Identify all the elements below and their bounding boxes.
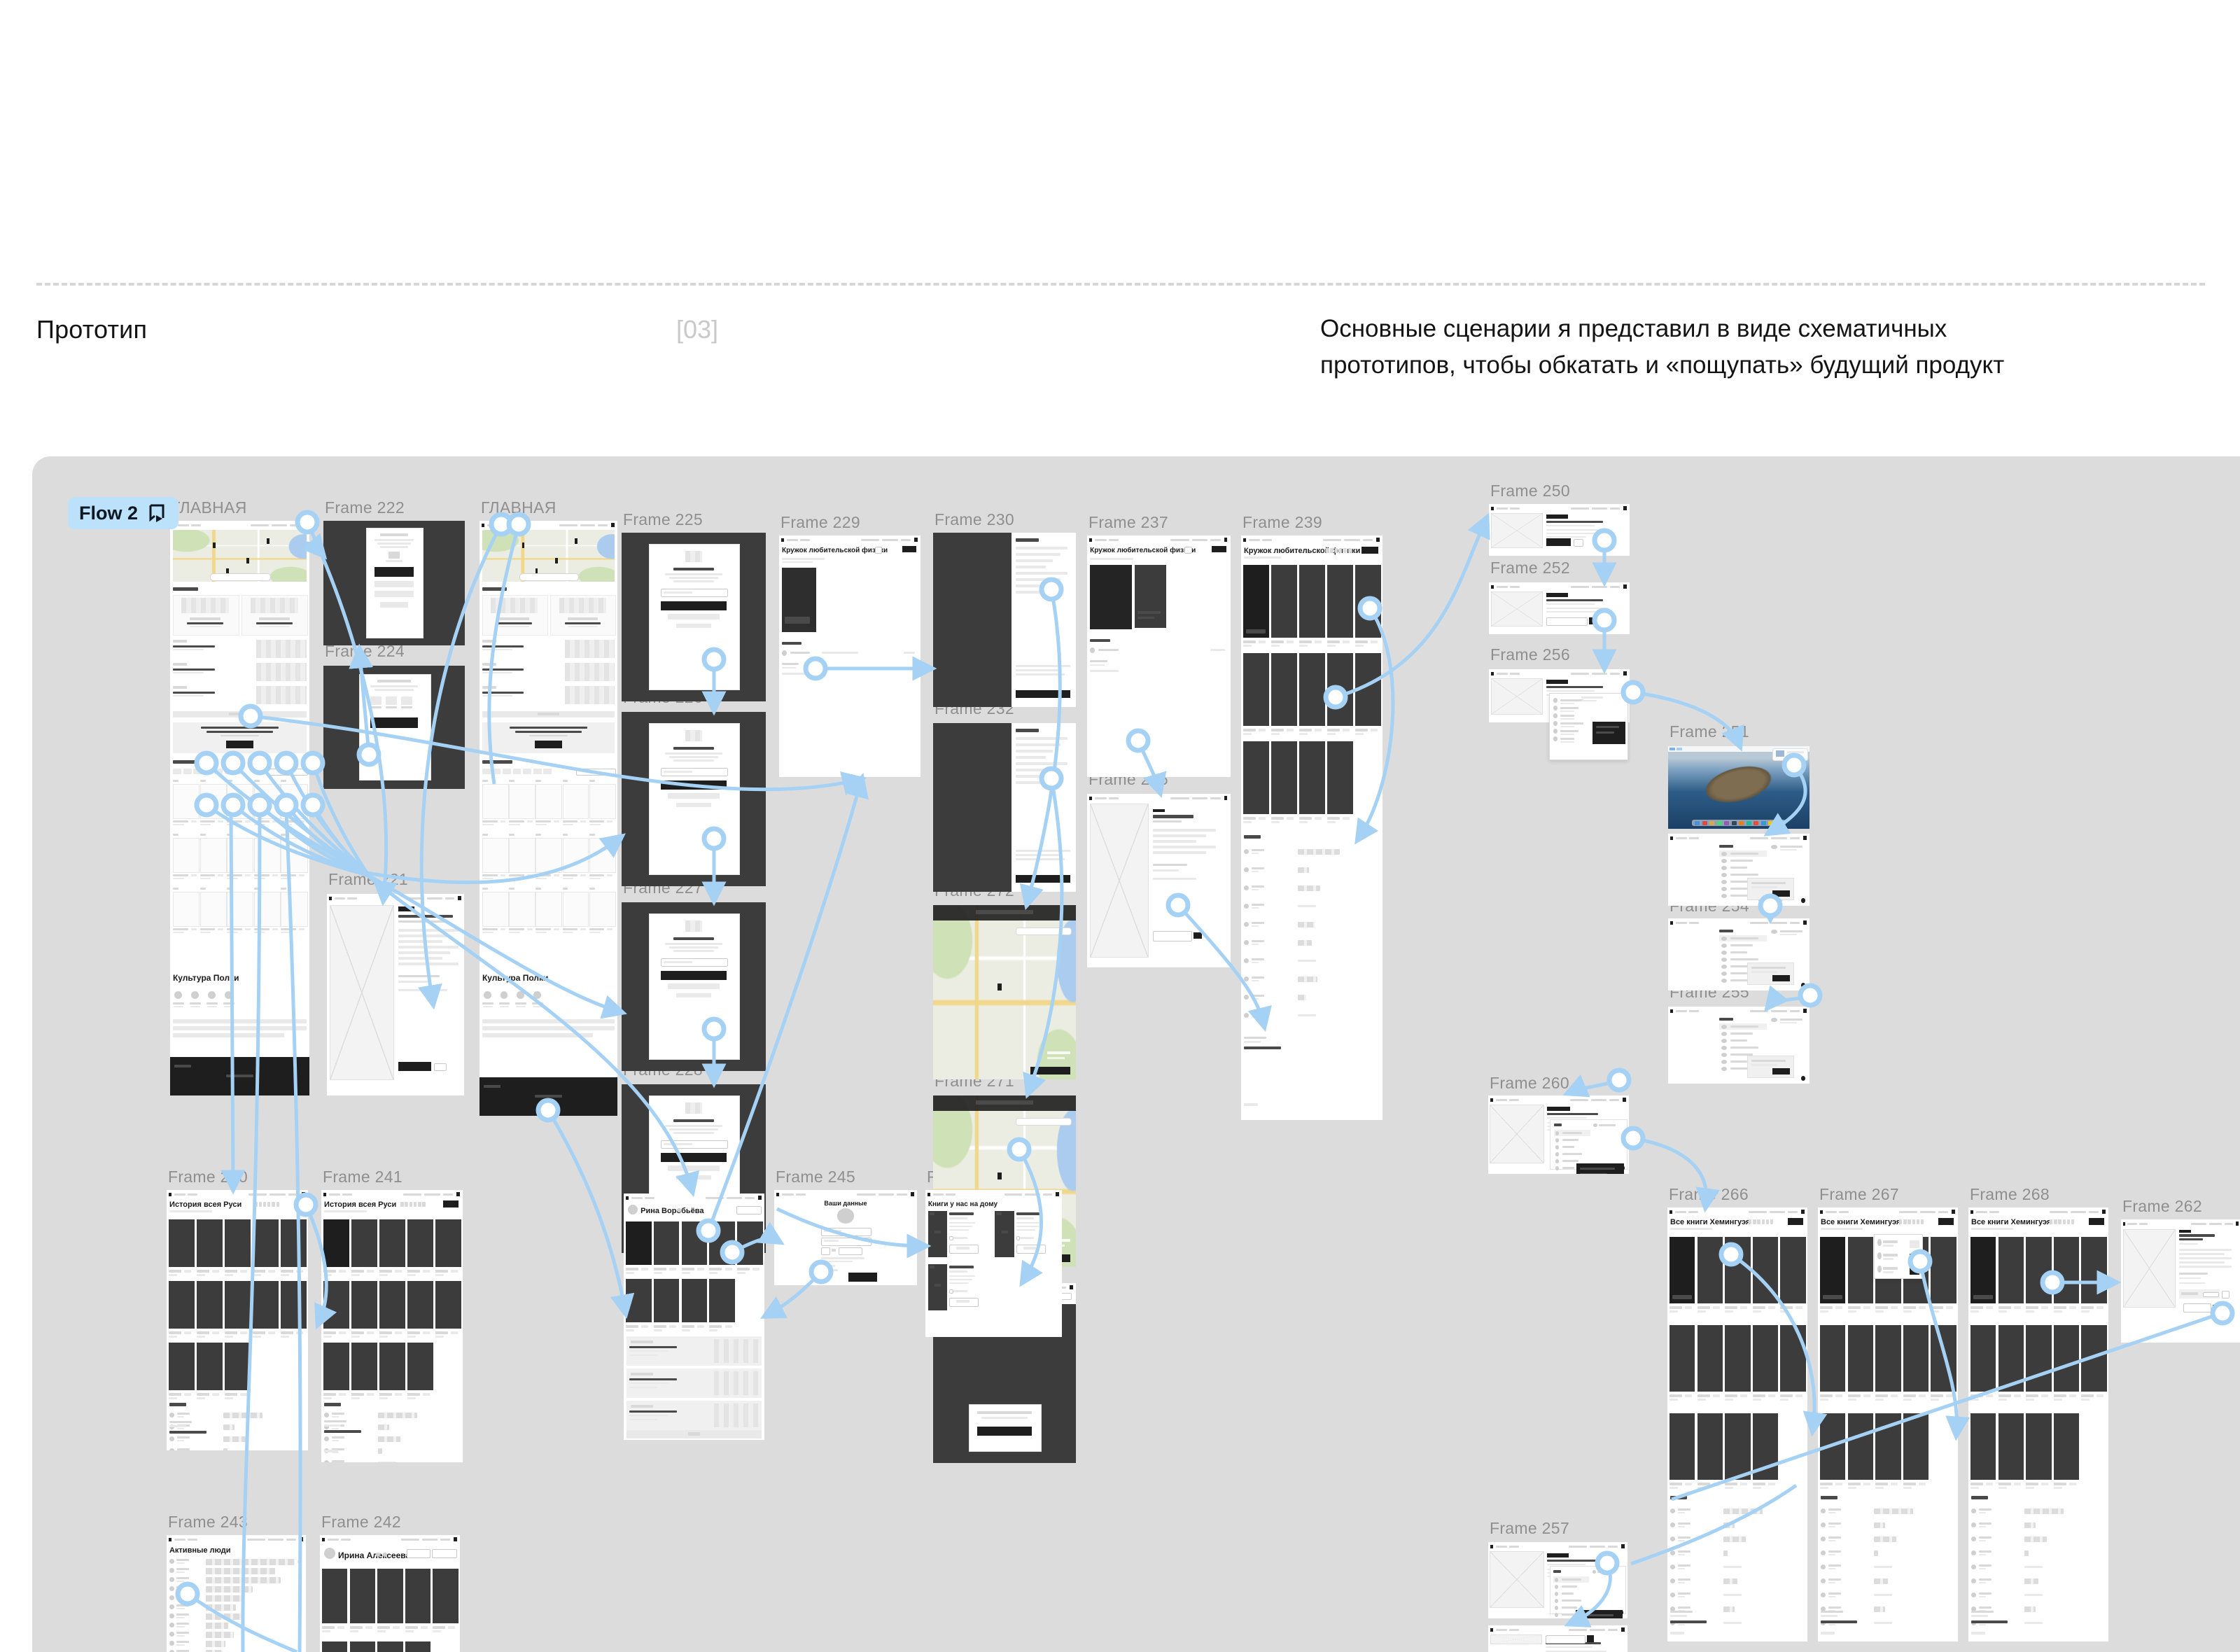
wireframe-element [169, 1641, 174, 1646]
wireframe-element [1243, 538, 1246, 542]
wireframe-element [821, 1257, 864, 1259]
wireframe-element [1730, 937, 1758, 939]
wireframe-element [281, 1219, 307, 1267]
wireframe-element [1090, 804, 1149, 958]
wireframe-element [1979, 1550, 1991, 1553]
wireframe-element [1979, 1606, 1991, 1609]
wireframe-element [176, 1644, 185, 1646]
canvas-frame-256[interactable] [1489, 669, 1630, 722]
wireframe-element [1713, 1483, 1720, 1485]
wireframe-element [1750, 837, 1768, 839]
wireframe-element [1730, 1032, 1753, 1035]
wireframe-element [832, 1249, 836, 1252]
wireframe-element [1546, 608, 1608, 609]
wireframe-element [1259, 817, 1266, 820]
wireframe-element [669, 1268, 676, 1270]
wireframe-element [1581, 700, 1597, 701]
wireframe-element [1244, 976, 1249, 981]
wireframe-element [254, 780, 260, 782]
wireframe-element [169, 1613, 174, 1618]
canvas-frame-240[interactable]: История всея Руси [167, 1190, 308, 1450]
wireframe-element [1979, 1526, 1986, 1527]
frame-label-260[interactable]: Frame 260 [1490, 1074, 1569, 1093]
wireframe-element [418, 1202, 421, 1207]
wireframe-element [380, 533, 408, 536]
wireframe-element [1016, 673, 1064, 675]
wireframe-element [200, 820, 216, 822]
wireframe-element [1891, 1483, 1898, 1485]
wireframe-element [2024, 1594, 2043, 1596]
wireframe-element [2069, 1394, 2076, 1397]
wireframe-element [1023, 1247, 1036, 1249]
canvas-frame-232[interactable] [933, 723, 1076, 892]
wireframe-element [367, 1270, 374, 1273]
wireframe-element [1919, 1306, 1926, 1309]
wireframe-element [1771, 930, 1777, 934]
wireframe-element [200, 932, 211, 933]
wireframe-element [631, 1197, 643, 1199]
wireframe-element [535, 838, 562, 873]
wireframe-element [1970, 1487, 1979, 1489]
frame-label-222[interactable]: Frame 222 [325, 498, 405, 517]
wireframe-element [374, 567, 414, 577]
wireframe-element [176, 1568, 189, 1570]
canvas-frame-226[interactable] [622, 712, 766, 886]
canvas-frame-250[interactable] [1489, 504, 1630, 556]
wireframe-element [1970, 1210, 1973, 1214]
wireframe-element [1252, 958, 1264, 960]
wireframe-element [563, 874, 578, 876]
wireframe-element [1569, 1546, 1587, 1548]
wireframe-element [299, 874, 304, 876]
wireframe-element [200, 780, 206, 782]
canvas-frame-261[interactable] [1488, 1625, 1627, 1652]
wireframe-element [1224, 538, 1228, 542]
wireframe-element [1670, 836, 1673, 840]
wireframe-element [177, 1428, 184, 1429]
wireframe-element [206, 1604, 237, 1611]
wireframe-element [176, 1577, 189, 1579]
wireframe-element [1510, 673, 1520, 675]
wireframe-element [378, 1413, 418, 1418]
wireframe-element [1970, 1394, 1983, 1397]
wireframe-element [510, 727, 587, 729]
frame-label-266[interactable]: Frame 266 [1669, 1185, 1749, 1204]
canvas-frame-222[interactable] [323, 521, 465, 645]
frame-label-242[interactable]: Frame 242 [321, 1513, 401, 1532]
canvas-frame-272[interactable] [933, 905, 1076, 1079]
wireframe-element [1597, 1571, 1614, 1573]
wireframe-element [210, 573, 270, 581]
wireframe-element [1919, 1394, 1926, 1397]
wireframe-element [1771, 922, 1786, 924]
wireframe-element [790, 652, 810, 654]
wireframe-element [1244, 1041, 1261, 1043]
wireframe-element [342, 1193, 352, 1196]
wireframe-element [1355, 565, 1381, 638]
wireframe-element [1016, 547, 1067, 549]
wireframe-element [563, 824, 574, 825]
wireframe-element [1689, 922, 1699, 924]
wireframe-element [1678, 1526, 1685, 1527]
wireframe-element [176, 1559, 189, 1561]
wireframe-element [654, 1279, 680, 1322]
wireframe-element [218, 874, 223, 876]
wireframe-element [341, 1539, 351, 1541]
canvas-frame-glavnaya-1[interactable]: Культура Полки [170, 521, 309, 1095]
canvas-frame-260[interactable] [1488, 1095, 1629, 1174]
wireframe-element [1355, 645, 1364, 647]
wireframe-element [169, 1421, 192, 1423]
canvas-frame-242[interactable]: Ирина Алексеева [320, 1535, 460, 1652]
frame-label-237[interactable]: Frame 237 [1088, 513, 1168, 532]
wireframe-element [559, 598, 606, 613]
wireframe-element [1327, 640, 1340, 643]
wireframe-element [1780, 934, 1797, 935]
wireframe-element [1252, 995, 1264, 997]
wireframe-element [1746, 821, 1751, 825]
frame-label-252[interactable]: Frame 252 [1490, 559, 1570, 577]
wireframe-element [482, 524, 484, 527]
wireframe-element [629, 1378, 677, 1380]
frame-label-230[interactable]: Frame 230 [934, 510, 1014, 529]
wireframe-element [1747, 1056, 1794, 1078]
wireframe-element [782, 650, 787, 656]
wireframe-element [649, 723, 740, 875]
wireframe-element [380, 602, 408, 608]
wireframe-element [2026, 1310, 2034, 1312]
wireframe-element [281, 874, 296, 876]
wireframe-element [661, 1153, 727, 1162]
wireframe-element [1299, 821, 1308, 823]
wireframe-element [253, 1219, 279, 1267]
canvas-frame-252[interactable] [1489, 582, 1630, 634]
wireframe-element [563, 834, 568, 836]
wireframe-element [2209, 1223, 2222, 1225]
wireframe-element [1821, 1228, 1863, 1230]
frame-label-225[interactable]: Frame 225 [623, 510, 703, 529]
wireframe-element [169, 1281, 195, 1329]
wireframe-element [1016, 665, 1070, 667]
wireframe-element [374, 591, 414, 597]
wireframe-element [398, 929, 458, 932]
wireframe-element [1249, 539, 1260, 541]
wireframe-element [1669, 1325, 1695, 1392]
wireframe-element [2183, 1303, 2211, 1312]
canvas-frame-266[interactable]: Все книги Хемингуэя [1667, 1207, 1807, 1641]
wireframe-element [398, 934, 450, 937]
wireframe-element [407, 1343, 433, 1390]
wireframe-element [395, 1331, 402, 1334]
wireframe-element [1343, 817, 1350, 820]
canvas-frame-254[interactable] [1668, 918, 1809, 990]
frame-label-229[interactable]: Frame 229 [780, 513, 860, 532]
canvas-frame-267[interactable]: Все книги Хемингуэя [1818, 1207, 1958, 1641]
wireframe-element [173, 692, 215, 694]
canvas-frame-230[interactable] [933, 533, 1076, 707]
wireframe-element [367, 1393, 374, 1396]
wireframe-element [629, 1350, 668, 1352]
wireframe-element [516, 1006, 526, 1007]
canvas-frame-glavnaya-2[interactable]: Культура Полки [479, 521, 617, 1116]
wireframe-element [1803, 836, 1807, 840]
wireframe-element [1740, 1483, 1747, 1485]
wireframe-element [351, 1397, 360, 1399]
wireframe-element [1670, 1536, 1675, 1541]
wireframe-element [668, 983, 720, 989]
wireframe-element [685, 730, 703, 741]
wireframe-element [246, 558, 249, 563]
wireframe-element [589, 780, 595, 782]
frame-label-221[interactable]: Frame 221 [328, 870, 408, 889]
wireframe-element [1771, 837, 1786, 839]
wireframe-element [1596, 731, 1615, 734]
frame-label-239[interactable]: Frame 239 [1242, 513, 1322, 532]
canvas-frame-237[interactable]: Кружок любительской физики [1087, 535, 1231, 777]
wireframe-element [169, 1274, 177, 1276]
frame-label-240[interactable]: Frame 240 [168, 1168, 248, 1186]
wireframe-element [949, 1289, 953, 1294]
canvas-frame-255[interactable] [1668, 1007, 1809, 1084]
wireframe-element [173, 824, 184, 825]
wireframe-element [1252, 962, 1259, 963]
wireframe-element [629, 1419, 657, 1420]
wireframe-element [2054, 1325, 2079, 1392]
wireframe-element [1670, 1550, 1675, 1555]
wireframe-element [563, 932, 574, 933]
wireframe-element [1780, 1399, 1788, 1401]
canvas-frame-225[interactable] [622, 533, 766, 701]
canvas-frame-268[interactable]: Все книги Хемингуэя [1968, 1207, 2108, 1641]
wireframe-element [685, 551, 703, 562]
flow-badge[interactable]: Flow 2 [68, 497, 178, 529]
wireframe-element [1271, 741, 1297, 814]
wireframe-element [335, 897, 346, 899]
wireframe-element [191, 820, 197, 822]
wireframe-element [173, 784, 199, 819]
wireframe-element [1971, 1578, 1976, 1583]
wireframe-element [563, 784, 589, 819]
wireframe-element [435, 1281, 461, 1329]
wireframe-element [1244, 1037, 1266, 1039]
canvas-frame-229[interactable]: Кружок любительской физики [779, 535, 920, 777]
wireframe-element [200, 834, 206, 836]
frame-label-268[interactable]: Frame 268 [1970, 1185, 2050, 1204]
wireframe-element [535, 928, 551, 930]
wireframe-element [227, 874, 242, 876]
wireframe-element [2014, 1483, 2021, 1485]
wireframe-element [407, 1281, 433, 1329]
wireframe-element [1344, 539, 1359, 541]
wireframe-element [673, 568, 714, 570]
wireframe-element [1554, 1123, 1562, 1126]
wireframe-element [1910, 1267, 1919, 1275]
wireframe-element [1243, 817, 1256, 820]
wireframe-element [1298, 940, 1312, 946]
wireframe-element [682, 1329, 690, 1331]
wireframe-element [1621, 1627, 1625, 1632]
wireframe-element [499, 1002, 510, 1004]
wireframe-element [500, 928, 506, 930]
wireframe-element [395, 1393, 402, 1396]
canvas-frame-221[interactable] [327, 894, 464, 1095]
wireframe-element [1979, 1624, 1986, 1625]
canvas-frame-262[interactable] [2121, 1219, 2240, 1343]
canvas-frame-244[interactable]: Рина Воробьёва [624, 1193, 764, 1440]
wireframe-element [169, 1210, 212, 1212]
canvas-frame-241[interactable]: История всея Руси [321, 1190, 463, 1462]
wireframe-element [901, 539, 911, 541]
wireframe-element [1095, 797, 1106, 799]
frame-label-257[interactable]: Frame 257 [1490, 1519, 1569, 1538]
wireframe-element [176, 1641, 189, 1643]
wireframe-element [1697, 1413, 1723, 1480]
wireframe-element [1823, 1295, 1842, 1299]
wireframe-element [1670, 1009, 1673, 1013]
frame-label-250[interactable]: Frame 250 [1490, 482, 1570, 500]
wireframe-element [535, 741, 562, 748]
canvas-frame-245[interactable]: Ваши данные [774, 1190, 917, 1285]
frame-label-262[interactable]: Frame 262 [2122, 1197, 2202, 1216]
wireframe-element [1730, 853, 1758, 855]
wireframe-element [1170, 797, 1189, 799]
wireframe-element [329, 1193, 340, 1196]
canvas-frame-243[interactable]: Активные люди [167, 1535, 306, 1652]
wireframe-element [1747, 962, 1794, 985]
wireframe-element [1848, 1413, 1873, 1480]
wireframe-element [1874, 1550, 1878, 1556]
frame-label-241[interactable]: Frame 241 [323, 1168, 402, 1186]
wireframe-element [176, 1586, 189, 1588]
wireframe-element [482, 1033, 593, 1037]
wireframe-element [200, 784, 227, 819]
wireframe-element [1153, 851, 1206, 854]
wireframe-element [1903, 1399, 1912, 1401]
canvas-frame-251[interactable] [1668, 746, 1809, 829]
wireframe-element [240, 1331, 247, 1334]
wireframe-element [1016, 854, 1058, 856]
canvas-frame-253[interactable] [1668, 834, 1809, 906]
wireframe-element [1153, 864, 1187, 866]
wireframe-element [1361, 547, 1378, 554]
wireframe-element [393, 1626, 400, 1629]
wireframe-element [1826, 1211, 1837, 1213]
canvas-frame-224[interactable] [323, 666, 465, 789]
frame-label-243[interactable]: Frame 243 [168, 1513, 248, 1532]
wireframe-element [1931, 1306, 1943, 1309]
wireframe-element [407, 1331, 420, 1334]
wireframe-element [1678, 1578, 1690, 1581]
wireframe-element [1780, 1018, 1802, 1021]
wireframe-element [1976, 1211, 1987, 1213]
prototype-play-icon [146, 503, 167, 524]
wireframe-element [1803, 920, 1807, 925]
wireframe-element [1491, 591, 1543, 626]
wireframe-element [197, 1336, 205, 1338]
wireframe-element [225, 1397, 233, 1399]
wireframe-element [1299, 741, 1325, 814]
wireframe-element [409, 1202, 412, 1207]
wireframe-element [173, 695, 204, 696]
wireframe-element [2054, 1394, 2066, 1397]
canvas-frame-239[interactable]: Кружок любительской физики [1241, 535, 1382, 1120]
wireframe-element [227, 888, 232, 890]
wireframe-element [1562, 1578, 1581, 1581]
wireframe-element [1753, 1483, 1765, 1485]
wireframe-element [1244, 556, 1281, 559]
wireframe-element [1907, 1219, 1910, 1224]
wireframe-element [229, 713, 251, 715]
wireframe-element [193, 769, 202, 774]
wireframe-element [664, 1143, 692, 1145]
wireframe-element [563, 928, 578, 930]
wireframe-element [1821, 1508, 1826, 1513]
wireframe-element [482, 668, 524, 671]
wireframe-element [669, 756, 718, 758]
wireframe-element [1599, 1124, 1616, 1126]
wireframe-element [254, 888, 260, 890]
wireframe-element [1874, 1234, 1923, 1279]
canvas-frame-227[interactable] [622, 902, 766, 1071]
wireframe-element [1676, 837, 1687, 839]
frame-label-glavnaya-2[interactable]: ГЛАВНАЯ [481, 498, 556, 517]
wireframe-element [376, 1553, 380, 1557]
frame-label-256[interactable]: Frame 256 [1490, 645, 1570, 664]
wireframe-element [1581, 696, 1603, 699]
wireframe-element [169, 1595, 174, 1600]
wireframe-element [379, 1219, 405, 1267]
wireframe-element [173, 530, 307, 582]
wireframe-element [1224, 796, 1228, 800]
frame-label-245[interactable]: Frame 245 [776, 1168, 855, 1186]
wireframe-element [1998, 1399, 2007, 1401]
wireframe-element [503, 769, 511, 774]
wireframe-element [337, 1626, 344, 1629]
wireframe-element [628, 1205, 638, 1214]
wireframe-element [629, 1354, 657, 1356]
wireframe-element [1553, 1570, 1561, 1573]
canvas-frame-246[interactable]: Книги у нас на дому [925, 1190, 1062, 1337]
wireframe-element [2024, 1536, 2047, 1542]
wireframe-element [435, 1270, 448, 1273]
canvas-frame-257[interactable] [1488, 1542, 1627, 1618]
wireframe-element [482, 530, 615, 582]
canvas-frame-236[interactable] [1087, 794, 1231, 967]
wireframe-element [433, 1626, 445, 1629]
wireframe-element [351, 1270, 364, 1273]
wireframe-element [782, 673, 810, 675]
wireframe-element [1721, 880, 1727, 884]
wireframe-element [225, 1281, 251, 1329]
wireframe-element [1725, 1310, 1733, 1312]
wireframe-element [2026, 1237, 2051, 1303]
wireframe-element [1376, 538, 1380, 542]
wireframe-element [1546, 538, 1570, 546]
wireframe-element [1670, 1615, 1687, 1617]
frame-label-267[interactable]: Frame 267 [1819, 1185, 1899, 1204]
wireframe-element [174, 1065, 191, 1067]
frame-label-251[interactable]: Frame 251 [1669, 722, 1749, 741]
wireframe-element [1670, 1522, 1675, 1527]
wireframe-element [857, 1193, 876, 1196]
wireframe-element [225, 1219, 251, 1267]
wireframe-element [201, 727, 279, 729]
wireframe-element [1931, 1310, 1939, 1312]
wireframe-element [1030, 1067, 1070, 1074]
frame-label-glavnaya-1[interactable]: ГЛАВНАЯ [171, 498, 247, 517]
wireframe-element [509, 892, 535, 927]
wireframe-element [1244, 922, 1249, 927]
